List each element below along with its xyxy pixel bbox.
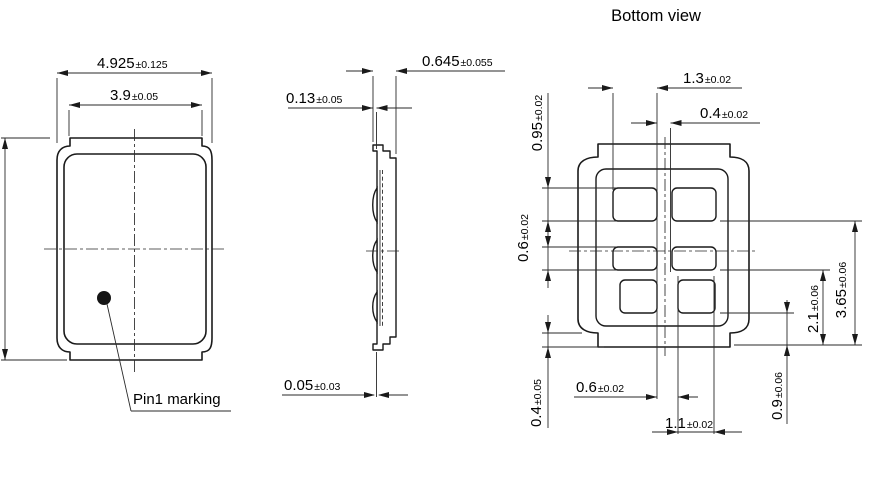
side-bump bbox=[373, 292, 377, 322]
drawing-canvas: Pin1 marking 4.925±0.125 3.9±0.05 bbox=[0, 0, 880, 495]
arrowhead bbox=[362, 68, 373, 74]
pad-top-right bbox=[672, 188, 716, 221]
dim-pad-gap-center: 0.4±0.02 bbox=[700, 105, 748, 122]
arrowhead bbox=[364, 392, 375, 398]
arrowhead bbox=[378, 392, 389, 398]
arrowhead bbox=[2, 349, 8, 360]
bottom-view-title: Bottom view bbox=[611, 7, 701, 25]
arrowhead bbox=[545, 177, 551, 188]
side-bump bbox=[373, 188, 377, 222]
pin1-label: Pin1 marking bbox=[133, 391, 221, 408]
arrowhead bbox=[714, 429, 725, 435]
pad-bottom-left bbox=[620, 280, 657, 313]
arrowhead bbox=[646, 120, 657, 126]
package-dimension-drawing: Pin1 marking 4.925±0.125 3.9±0.05 bbox=[0, 0, 880, 495]
side-view: 0.645±0.055 0.13±0.05 0.05±0.03 bbox=[282, 53, 505, 398]
arrowhead bbox=[545, 236, 551, 247]
dim-front-outer-width: 4.925±0.125 bbox=[97, 55, 168, 72]
arrowhead bbox=[2, 138, 8, 149]
dim-pad-span-inner: 2.1±0.06 bbox=[805, 285, 822, 333]
arrowhead bbox=[545, 270, 551, 281]
arrowhead bbox=[377, 105, 388, 111]
pad-mid-left bbox=[613, 247, 657, 270]
arrowhead bbox=[852, 221, 858, 232]
arrowhead bbox=[362, 105, 373, 111]
arrowhead bbox=[201, 70, 212, 76]
dim-edge-to-tab: 0.4±0.05 bbox=[528, 379, 545, 427]
side-bump bbox=[373, 240, 377, 272]
front-view: Pin1 marking 4.925±0.125 3.9±0.05 bbox=[1, 55, 231, 411]
arrowhead bbox=[57, 70, 68, 76]
pad-top-left bbox=[613, 188, 657, 221]
pin1-leader-line bbox=[107, 304, 131, 411]
pin1-marking-dot bbox=[97, 291, 111, 305]
dim-pad-span-outer: 3.65±0.06 bbox=[833, 262, 850, 319]
arrowhead bbox=[657, 85, 668, 91]
arrowhead bbox=[784, 302, 790, 313]
arrowhead bbox=[820, 270, 826, 281]
dim-pad-height-mid: 0.6±0.02 bbox=[515, 214, 532, 262]
dim-corner-pad-width: 1.1±0.02 bbox=[665, 415, 713, 432]
dim-front-inner-width: 3.9±0.05 bbox=[110, 87, 158, 104]
bottom-package-outline bbox=[578, 144, 749, 347]
dim-corner-pad-height: 0.9±0.06 bbox=[769, 372, 786, 420]
dim-corner-pad-gap: 0.6±0.02 bbox=[576, 379, 624, 396]
arrowhead bbox=[784, 345, 790, 356]
bottom-view: Bottom view 1.3±0.02 0.4±0.02 bbox=[515, 7, 862, 435]
arrowhead bbox=[69, 102, 80, 108]
arrowhead bbox=[678, 394, 689, 400]
pad-bottom-right bbox=[678, 280, 715, 313]
dim-side-standoff: 0.05±0.03 bbox=[284, 377, 341, 394]
arrowhead bbox=[396, 68, 407, 74]
arrowhead bbox=[646, 394, 657, 400]
dim-side-lid-thickness: 0.13±0.05 bbox=[286, 90, 343, 107]
dim-side-thickness: 0.645±0.055 bbox=[422, 53, 493, 70]
dim-pad-height-end: 0.95±0.02 bbox=[529, 95, 546, 152]
arrowhead bbox=[602, 85, 613, 91]
arrowhead bbox=[545, 322, 551, 333]
pad-mid-right bbox=[672, 247, 716, 270]
arrowhead bbox=[545, 221, 551, 232]
arrowhead bbox=[545, 347, 551, 358]
arrowhead bbox=[820, 334, 826, 345]
dim-pad-width-main: 1.3±0.02 bbox=[683, 70, 731, 87]
arrowhead bbox=[852, 334, 858, 345]
arrowhead bbox=[671, 120, 682, 126]
arrowhead bbox=[191, 102, 202, 108]
